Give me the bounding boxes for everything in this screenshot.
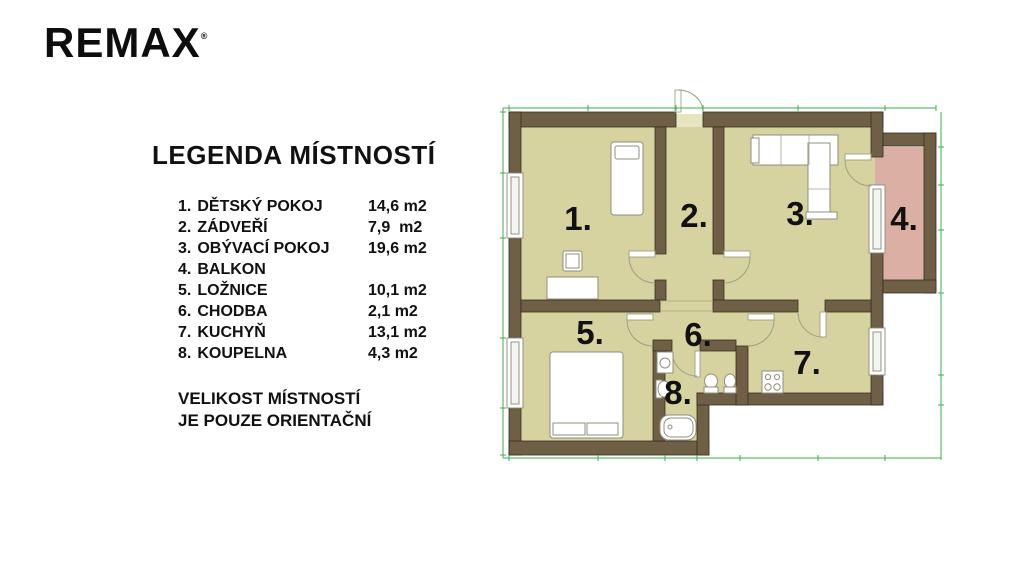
window-pane: [873, 332, 881, 371]
legend-row: 7.KUCHYŇ 13,1 m2: [178, 322, 427, 343]
room-name: BALKON: [197, 261, 265, 278]
entrance-threshold: [676, 114, 703, 127]
window-pane: [873, 189, 881, 249]
legend-note: VELIKOST MÍSTNOSTÍ JE POUZE ORIENTAČNÍ: [178, 388, 371, 432]
legend-row: 1.DĚTSKÝ POKOJ 14,6 m2: [178, 196, 427, 217]
room-number: 7.: [178, 324, 191, 341]
note-line-2: JE POUZE ORIENTAČNÍ: [178, 410, 371, 432]
window-pane: [511, 177, 519, 234]
legend-row: 5.LOŽNICE 10,1 m2: [178, 280, 427, 301]
wall-segment: [871, 112, 883, 157]
room-label-3: 3.: [786, 195, 814, 232]
stove: [762, 371, 783, 393]
remax-logo: REMAX®: [44, 22, 207, 64]
wall-segment: [713, 127, 724, 254]
door-leaf: [845, 154, 871, 160]
room-number: 8.: [178, 345, 191, 362]
wall-segment: [871, 375, 883, 405]
door-leaf: [820, 312, 826, 337]
bathtub-drain: [668, 425, 672, 429]
legend-row: 3.OBÝVACÍ POKOJ 19,6 m2: [178, 238, 427, 259]
wall-segment: [871, 253, 883, 328]
room-label-2: 2.: [680, 197, 708, 234]
bidet: [725, 374, 736, 388]
wall-segment: [713, 280, 724, 300]
door-arc: [678, 90, 703, 112]
wall-segment: [697, 393, 883, 405]
wall-segment: [655, 127, 666, 254]
room-number: 3.: [178, 240, 191, 257]
chair-seat: [566, 254, 579, 268]
room-area: 7,9 m2: [368, 217, 422, 238]
room-number: 1.: [178, 198, 191, 215]
room-label-1: 1.: [564, 200, 592, 237]
wall-segment: [653, 340, 672, 351]
stove-burner: [765, 384, 771, 390]
room-area: 10,1 m2: [368, 280, 427, 301]
room-label-5: 5.: [576, 314, 604, 351]
room-number: 5.: [178, 282, 191, 299]
floor-plan-svg: 1. 2. 3. 4. 5. 6. 7. 8.: [498, 83, 948, 473]
room-area: 14,6 m2: [368, 196, 427, 217]
bed-pillow: [615, 146, 639, 159]
room-name: CHODBA: [197, 303, 267, 320]
room-area: 13,1 m2: [368, 322, 427, 343]
note-line-1: VELIKOST MÍSTNOSTÍ: [178, 388, 371, 410]
wall-segment: [825, 300, 871, 312]
wall-segment: [509, 238, 521, 338]
room-label-4: 4.: [890, 200, 918, 237]
room-area: 2,1 m2: [368, 301, 418, 322]
legend-list: 1.DĚTSKÝ POKOJ 14,6 m2 2.ZÁDVEŘÍ 7,9 m2 …: [178, 196, 427, 364]
legend-row: 6.CHODBA 2,1 m2: [178, 301, 427, 322]
bidet-base: [724, 387, 736, 393]
toilet-tank: [704, 387, 718, 393]
wall-segment: [703, 112, 883, 127]
stove-burner: [774, 384, 780, 390]
stove-burner: [765, 374, 770, 379]
room-area: 19,6 m2: [368, 238, 427, 259]
door-leaf: [748, 314, 774, 320]
room-number: 2.: [178, 219, 191, 236]
room-name: DĚTSKÝ POKOJ: [197, 198, 322, 215]
stove-burner: [774, 374, 779, 379]
legend-row: 2.ZÁDVEŘÍ 7,9 m2: [178, 217, 427, 238]
floor-plan: 1. 2. 3. 4. 5. 6. 7. 8.: [498, 83, 948, 473]
balcony-wall: [883, 280, 936, 293]
toilet: [705, 374, 718, 388]
room-label-6: 6.: [684, 316, 712, 353]
legend-title: LEGENDA MÍSTNOSTÍ: [152, 140, 435, 171]
remax-logo-text: REMAX: [44, 19, 201, 66]
legend-row: 4.BALKON: [178, 259, 427, 280]
door-leaf: [724, 251, 750, 257]
room-name: KUCHYŇ: [197, 324, 265, 341]
wall-segment: [521, 300, 660, 312]
desk: [547, 277, 598, 299]
wall-segment: [509, 112, 521, 173]
door-leaf: [627, 314, 653, 320]
window-pane: [511, 342, 519, 404]
door-leaf: [629, 251, 655, 257]
bed-pillow: [553, 423, 585, 435]
room-name: OBÝVACÍ POKOJ: [197, 240, 329, 257]
page: REMAX® LEGENDA MÍSTNOSTÍ 1.DĚTSKÝ POKOJ …: [0, 0, 1024, 576]
room-number: 4.: [178, 261, 191, 278]
wall-segment: [509, 112, 676, 127]
sofa-armrest: [751, 138, 759, 163]
balcony-wall: [924, 133, 936, 293]
room-number: 6.: [178, 303, 191, 320]
room-name: LOŽNICE: [197, 282, 267, 299]
room-name: ZÁDVEŘÍ: [197, 219, 267, 236]
room-label-8: 8.: [664, 374, 692, 411]
bed-pillow: [587, 423, 618, 435]
wall-segment: [736, 346, 748, 405]
door-leaf: [695, 351, 700, 377]
trademark-icon: ®: [201, 31, 208, 41]
room-name: KOUPELNA: [197, 345, 287, 362]
wall-segment: [655, 280, 666, 300]
legend-row: 8.KOUPELNA 4,3 m2: [178, 343, 427, 364]
wall-segment: [713, 300, 798, 312]
room-label-7: 7.: [793, 344, 821, 381]
room-area: 4,3 m2: [368, 343, 418, 364]
wall-segment: [509, 441, 709, 455]
washing-machine-drum: [660, 358, 670, 368]
